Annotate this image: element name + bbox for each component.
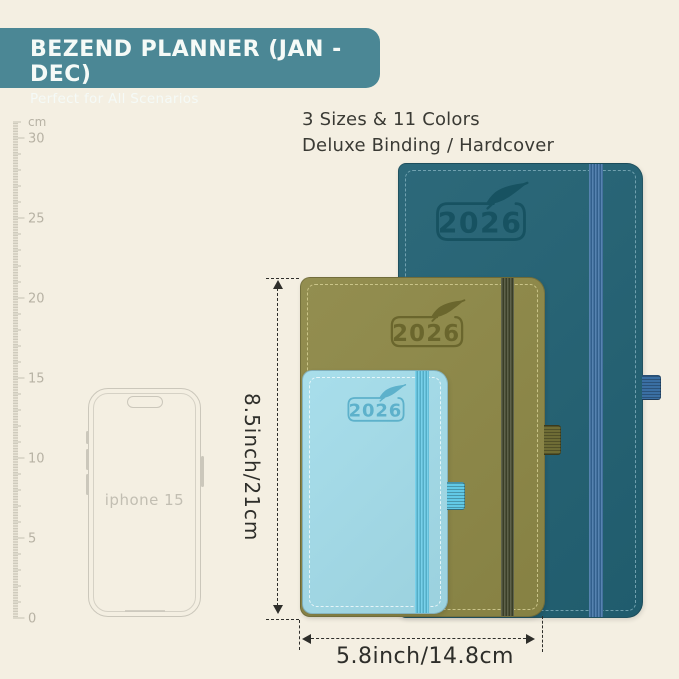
iphone-outline: iphone 15	[88, 388, 201, 617]
width-dimension-label: 5.8inch/14.8cm	[330, 644, 520, 669]
height-dimension-tick-bottom	[266, 619, 299, 620]
headline: 3 Sizes & 11 Colors Deluxe Binding / Har…	[302, 107, 554, 159]
width-dimension-tick-left	[299, 620, 300, 650]
svg-text:10: 10	[28, 452, 45, 467]
height-dimension-label: 8.5inch/21cm	[240, 393, 264, 607]
elastic-band	[415, 371, 429, 613]
arrow-right-icon	[526, 634, 535, 644]
svg-text:30: 30	[28, 132, 45, 147]
pen-loop	[544, 425, 561, 455]
elastic-band	[589, 164, 603, 617]
phone-dynamic-island	[127, 396, 163, 408]
planner-small: 2026	[302, 370, 448, 614]
headline-sizes-colors: 3 Sizes & 11 Colors	[302, 107, 554, 133]
banner-title: BEZEND PLANNER (JAN - DEC)	[30, 37, 380, 87]
arrow-up-icon	[273, 280, 283, 289]
phone-volume-up-button	[86, 449, 89, 470]
year-logo: 2026	[343, 383, 409, 426]
arrow-down-icon	[273, 605, 283, 614]
phone-label: iphone 15	[89, 491, 200, 509]
svg-text:15: 15	[28, 372, 45, 387]
width-dimension-line	[311, 638, 526, 639]
svg-text:cm: cm	[28, 115, 46, 129]
svg-text:0: 0	[28, 612, 36, 627]
svg-text:20: 20	[28, 292, 45, 307]
year-logo: 2026	[385, 298, 469, 353]
pen-loop	[642, 375, 661, 400]
ruler: 051015202530cm	[8, 110, 60, 632]
width-dimension-tick-right	[542, 616, 543, 652]
product-infographic: BEZEND PLANNER (JAN - DEC) Perfect for A…	[0, 0, 679, 679]
pen-loop	[447, 482, 465, 510]
arrow-left-icon	[302, 634, 311, 644]
year-logo: 2026	[429, 180, 533, 248]
year-text: 2026	[349, 401, 403, 422]
phone-mute-switch	[86, 431, 89, 444]
year-text: 2026	[392, 321, 460, 347]
phone-power-button	[201, 456, 204, 487]
svg-text:5: 5	[28, 532, 36, 547]
elastic-band	[501, 278, 514, 616]
header-banner: BEZEND PLANNER (JAN - DEC) Perfect for A…	[0, 28, 380, 88]
banner-subtitle: Perfect for All Scenarios	[30, 91, 380, 107]
phone-port	[125, 610, 165, 612]
height-dimension-tick-top	[266, 278, 299, 279]
year-text: 2026	[438, 207, 523, 240]
svg-text:25: 25	[28, 212, 45, 227]
headline-binding: Deluxe Binding / Hardcover	[302, 133, 554, 159]
height-dimension-line	[277, 288, 278, 606]
